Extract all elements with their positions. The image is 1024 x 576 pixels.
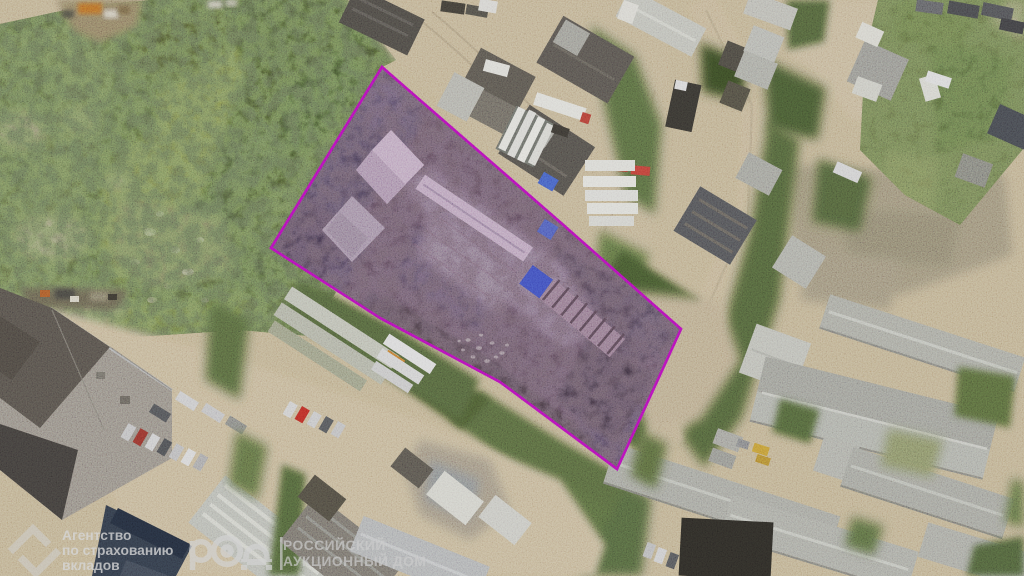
svg-text:АУКЦИОННЫЙ ДОМ: АУКЦИОННЫЙ ДОМ [283,552,426,569]
svg-text:Агентство: Агентство [62,528,131,543]
svg-text:вкладов: вкладов [62,558,120,573]
svg-text:по страхованию: по страхованию [62,543,174,558]
svg-text:РОССИЙСКИЙ: РОССИЙСКИЙ [283,536,386,553]
